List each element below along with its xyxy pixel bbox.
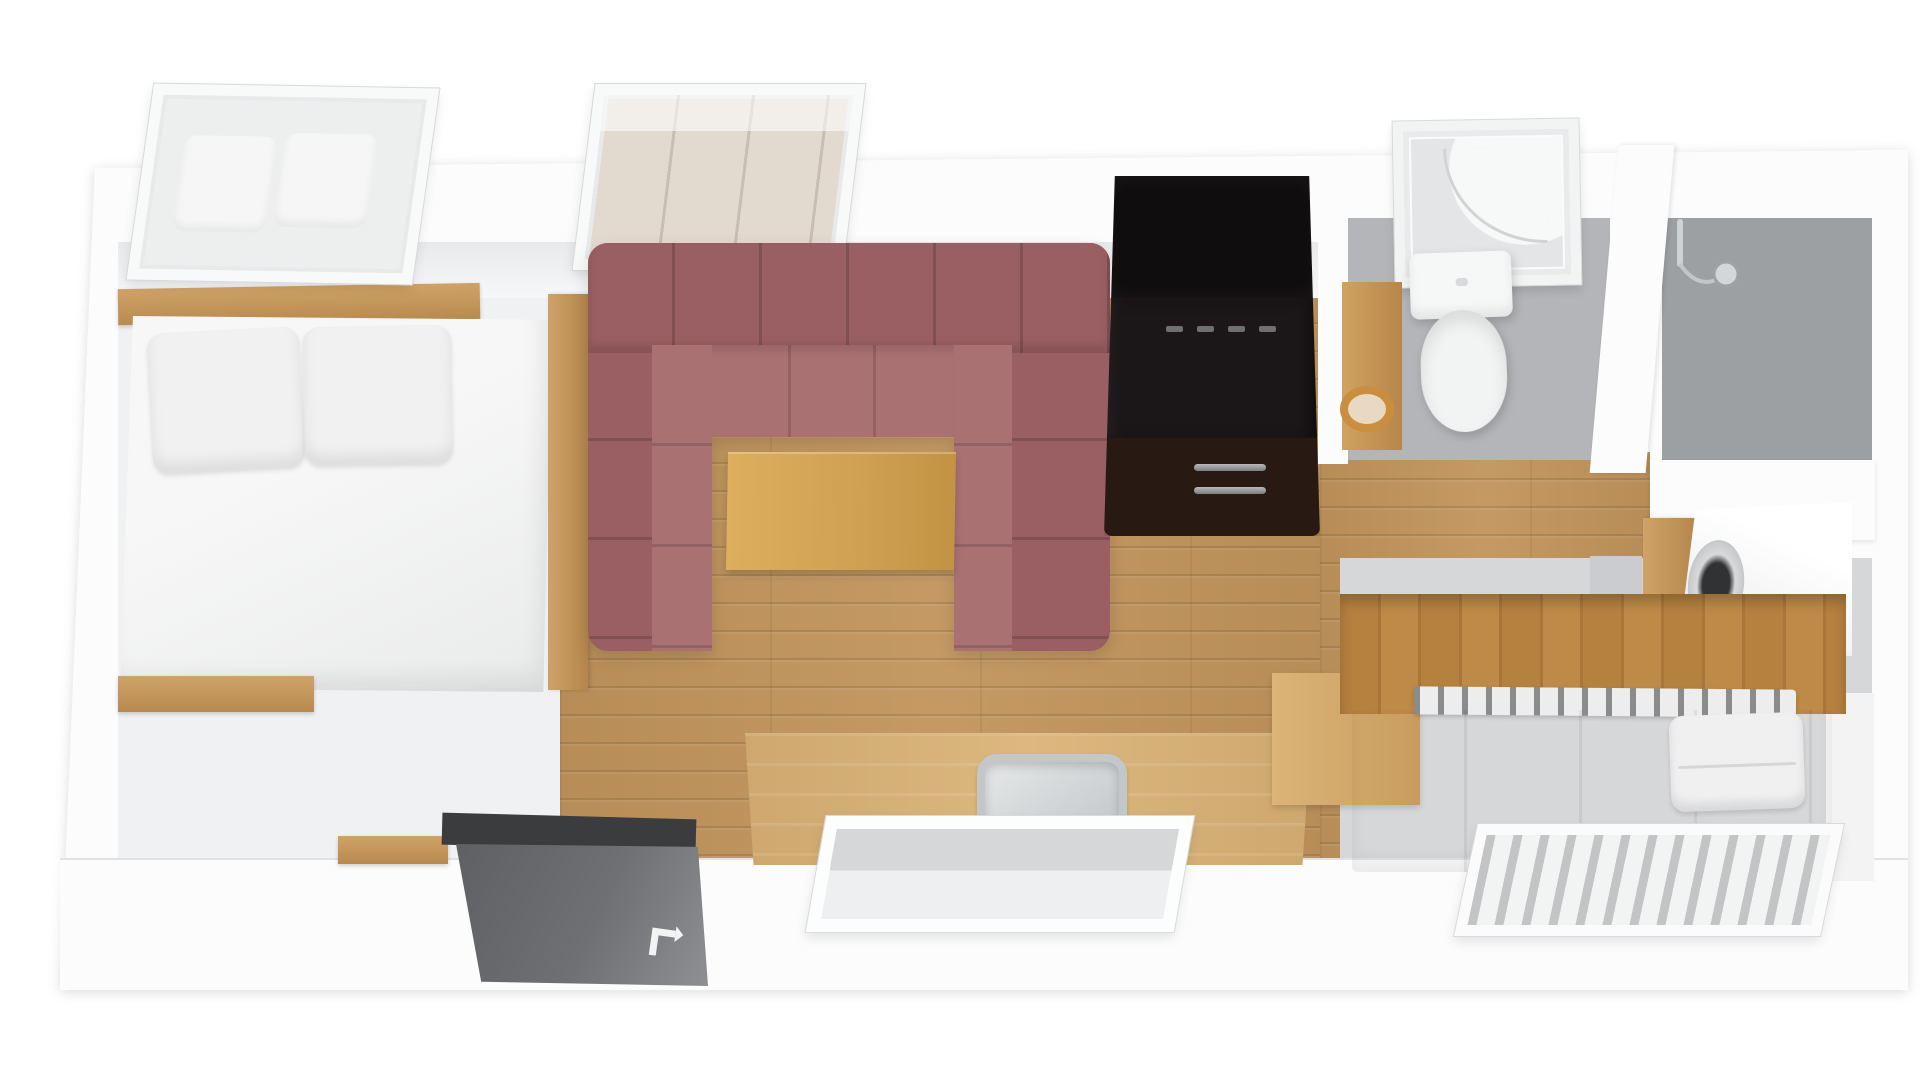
fridge-control [1259,326,1276,332]
kitchen-open-window [806,816,1194,932]
freezer-handle [1194,487,1266,494]
toilet-flush-button [1456,278,1468,286]
fridge-control [1197,326,1214,332]
toilet-bowl [1419,309,1509,434]
sofa-seat-cushions [652,345,712,651]
bed-side-rail [548,294,588,690]
pillow [303,325,453,466]
right-wall [1872,150,1908,890]
sofa-seat-cushions [954,345,1012,651]
shower-head-icon [1666,216,1750,310]
bedroom-open-window [127,84,440,285]
wood-bench [118,676,314,712]
window-reflection [172,135,277,233]
round-basin [1340,386,1394,432]
fridge-control [1228,326,1245,332]
second-bedroom-open-window [1454,824,1844,936]
fridge-body [1104,298,1320,440]
toilet [1403,250,1525,442]
pillow [146,326,305,474]
coffee-table [726,452,956,570]
window-reflection [273,133,378,229]
door-arrow-icon [633,917,685,969]
freezer-handle [1194,464,1266,471]
refrigerator [1104,176,1320,536]
window-glass [585,95,853,259]
sofa-back-cushions [588,243,1110,353]
fridge-control [1166,326,1183,332]
floor-plan-stage [0,0,1920,1079]
pillow [1668,712,1805,813]
fridge-top [1104,176,1320,300]
sofa-seat-cushions [706,345,958,437]
wood-bench [338,836,448,864]
sectional-sofa [588,243,1110,651]
